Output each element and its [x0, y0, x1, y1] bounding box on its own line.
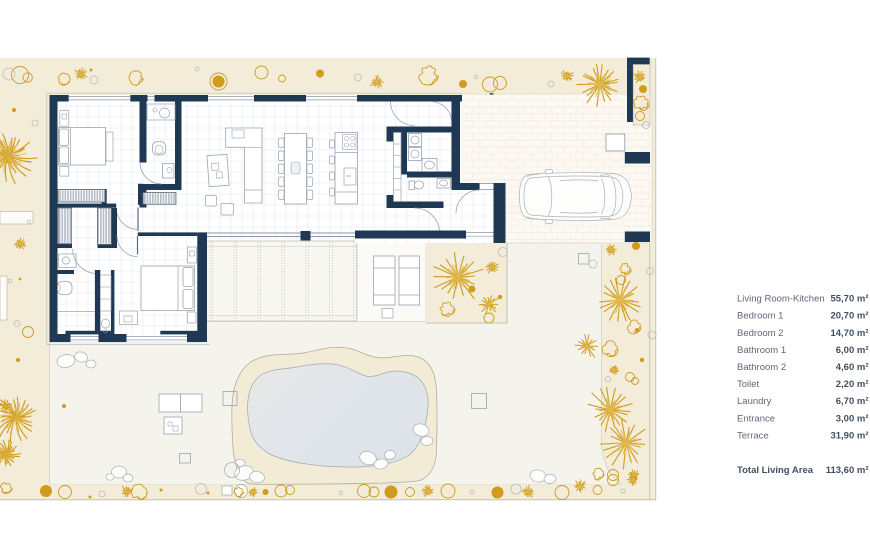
- svg-text:Bathroom 1: Bathroom 1: [737, 345, 786, 356]
- svg-text:31,90 m²: 31,90 m²: [830, 430, 868, 441]
- svg-text:20,70 m²: 20,70 m²: [830, 311, 868, 322]
- svg-text:‴: ‴: [489, 93, 494, 100]
- svg-text:Living Room-Kitchen: Living Room-Kitchen: [737, 294, 825, 305]
- svg-text:4,60 m²: 4,60 m²: [836, 362, 869, 373]
- svg-text:Bedroom 2: Bedroom 2: [737, 328, 783, 339]
- svg-text:Entrance: Entrance: [737, 413, 775, 424]
- svg-text:6,00 m²: 6,00 m²: [836, 345, 869, 356]
- svg-text:14,70 m²: 14,70 m²: [830, 328, 868, 339]
- svg-text:Terrace: Terrace: [737, 430, 769, 441]
- svg-text:Toilet: Toilet: [737, 379, 760, 390]
- svg-text:Bedroom 1: Bedroom 1: [737, 311, 783, 322]
- svg-text:113,60 m²: 113,60 m²: [826, 465, 869, 476]
- svg-text:2,20 m²: 2,20 m²: [836, 379, 869, 390]
- svg-text:55,70 m²: 55,70 m²: [830, 294, 868, 305]
- svg-text:Bathroom 2: Bathroom 2: [737, 362, 786, 373]
- svg-text:6,70 m²: 6,70 m²: [836, 396, 869, 407]
- svg-text:Total Living Area: Total Living Area: [737, 465, 814, 476]
- svg-text:Laundry: Laundry: [737, 396, 772, 407]
- svg-text:3,00 m²: 3,00 m²: [836, 413, 869, 424]
